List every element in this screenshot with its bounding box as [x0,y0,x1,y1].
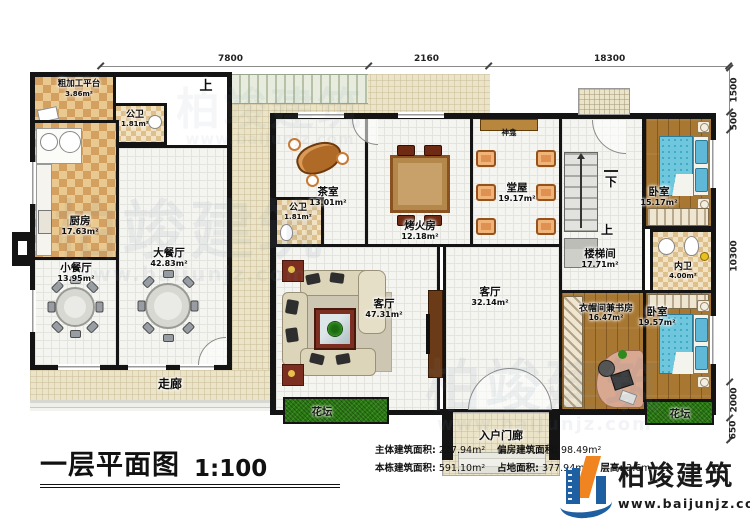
wardrobe [647,208,709,226]
stat-building-area: 本栋建筑面积: 591.10m² [375,464,485,474]
dim-18300: 18300 [594,54,625,64]
chair-orange [536,184,556,201]
tv-cabinet [428,290,443,378]
corridor-step [30,400,292,411]
nightstand [697,376,710,388]
chair [96,302,104,313]
chair [163,270,174,278]
kitchen-sink-bowl [40,133,58,151]
inner-bath-toilet [684,236,699,256]
sofa-cushion [329,272,344,284]
altar-shrine: 神龛 [480,119,538,131]
bed-pillow [695,346,708,370]
chimney-flue [18,241,27,255]
chair [70,276,81,284]
corridor-strip [30,370,292,400]
window [128,364,166,370]
plan-scale: 1:100 [194,456,267,482]
dim-10300: 10300 [730,240,740,271]
dim-1500: 1500 [730,77,740,102]
altar-label: 神龛 [502,128,517,137]
floor-plan: 上 走廊 7800 2160 18300 1500 500 10300 2000… [0,0,750,530]
nightstand [697,300,710,312]
chair-dark [424,145,442,156]
desk-plant [618,350,627,359]
inner-bath-sink [658,238,675,255]
tea-cup [336,152,349,165]
chair [138,301,146,312]
wardrobe-tall [563,296,583,408]
chair-dark [424,215,442,226]
bed-pillow [695,318,708,342]
chair-dark [397,145,415,156]
top-dim-line [100,66,729,67]
fire-table [390,155,450,213]
chair-orange [476,150,496,167]
stat-main-area: 主体建筑面积: 227.94m² [375,446,485,456]
dining-table-large [145,283,191,329]
stair-rail [580,156,582,228]
tea-cup [288,138,301,151]
chair-orange [476,184,496,201]
bed-sheet [659,174,693,196]
company-logo: 柏竣建筑 www.baijunjz.com [558,448,748,526]
tea-cup [306,174,319,187]
chair [70,330,81,338]
chair-orange [536,150,556,167]
inner-bath-accessory [700,252,709,261]
corner-table-star [288,266,295,273]
window [398,112,444,118]
sofa-cushion [285,327,299,343]
window [298,112,344,118]
bath-main-toilet [280,224,293,241]
chair-orange [476,218,496,235]
title-underline: 一层平面图 1:100 [40,443,340,488]
flower-bed-left [283,397,389,424]
logo-text: 柏竣建筑 www.baijunjz.com [618,454,748,511]
chair [191,301,199,312]
logo-company-url: www.baijunjz.com [618,496,748,511]
dim-7800: 7800 [218,54,243,64]
dining-table-small [55,287,95,327]
stair-down-mark [604,170,618,172]
chair [163,334,174,342]
kitchen-sink-bowl [59,131,81,153]
dim-2000: 2000 [730,387,740,412]
stair-arrow-head [577,153,585,159]
chair-dark [397,215,415,226]
chair [48,302,56,313]
flower-bed-right [645,400,714,425]
page-title: 一层平面图 [40,443,180,482]
rear-landing [578,88,630,115]
tv-screen [426,314,430,354]
window [710,140,716,188]
corner-table-star [288,370,295,377]
plant [328,322,342,336]
logo-company-name: 柏竣建筑 [618,454,748,493]
window [30,290,36,332]
window [58,364,100,370]
window [710,316,716,364]
nightstand [697,121,710,133]
window [30,162,36,204]
bath-left-sink [148,115,162,129]
sofa-chaise [358,270,386,334]
bed-sheet [659,352,693,374]
logo-icon [558,452,616,518]
stair-cabinet [564,238,598,268]
dim-2160: 2160 [414,54,439,64]
dim-500: 500 [729,112,739,131]
chair-orange [536,218,556,235]
bed-pillow [695,140,708,164]
sofa-cushion [285,299,299,315]
room-inner-bath [650,229,713,293]
side-corridor [232,74,270,370]
kitchen-stove [38,210,52,234]
bed-pillow [695,168,708,192]
dim-650: 650 [728,421,738,440]
desk-chair [598,360,615,377]
